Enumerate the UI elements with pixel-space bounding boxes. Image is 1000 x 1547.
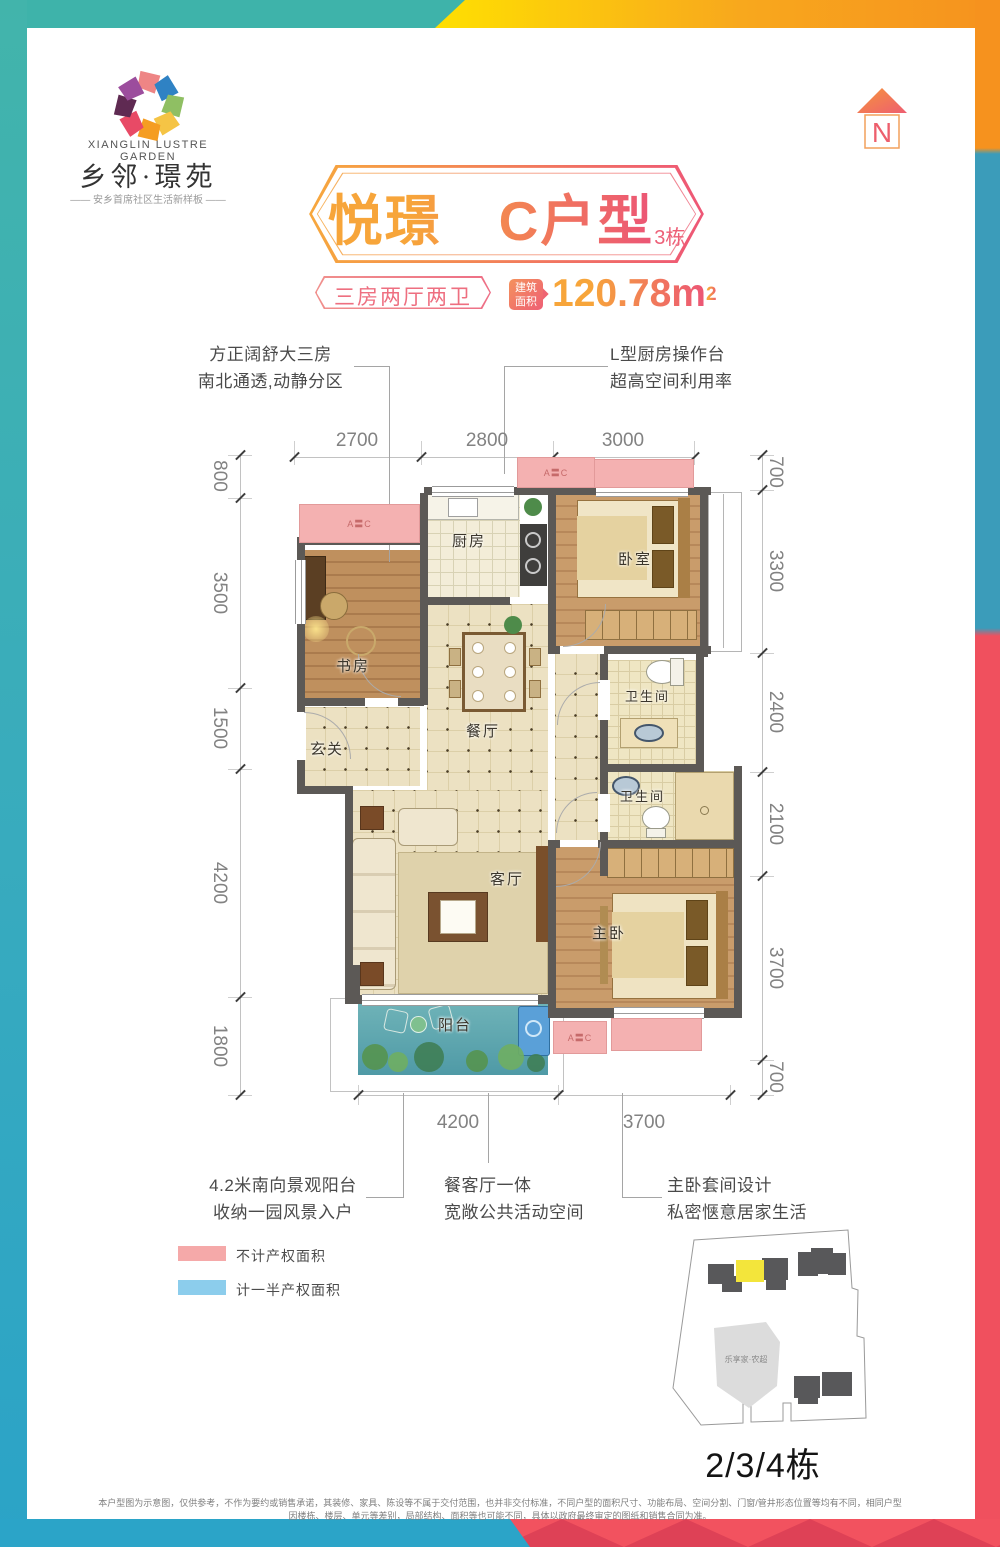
callout-top-left-line2: 南北通透,动静分区 — [198, 372, 343, 391]
leader-line — [504, 366, 608, 367]
callout-top-right: L型厨房操作台 超高空间利用率 — [610, 341, 770, 395]
dining-plate — [504, 666, 516, 678]
room-label-bedroom: 卧室 — [618, 548, 652, 569]
dim-value: 3500 — [210, 563, 230, 623]
ac-label: A〓C — [568, 1031, 593, 1044]
balcony-chair — [383, 1008, 409, 1034]
dim-value: 3300 — [766, 541, 786, 601]
bath2-toilet-bowl — [642, 806, 670, 830]
master-pillow — [686, 900, 708, 940]
leader-line — [622, 1093, 623, 1197]
legend-swatch-pink — [178, 1246, 226, 1261]
ac-area-block: A〓C — [517, 457, 595, 488]
dim-value: 1800 — [210, 1016, 230, 1076]
legend-swatch-blue — [178, 1280, 226, 1295]
bay-window-line — [723, 494, 724, 648]
dim-value: 700 — [766, 442, 786, 502]
lotus-plant — [362, 1044, 388, 1070]
dining-plant — [504, 616, 522, 634]
ac-label: A〓C — [544, 466, 569, 479]
dim-value: 2400 — [766, 682, 786, 742]
lotus-plant — [414, 1042, 444, 1072]
building-number: 3栋 — [654, 227, 685, 249]
lotus-plant — [466, 1050, 488, 1072]
ac-area-block: A〓C — [299, 504, 420, 543]
study-rug — [346, 626, 376, 656]
dining-plate — [472, 642, 484, 654]
site-plan: 乐享家·农超 — [648, 1224, 960, 1450]
dim-value: 3700 — [766, 938, 786, 998]
window — [295, 560, 306, 624]
lotus-plant — [527, 1054, 545, 1072]
callout-top-left-line1: 方正阔舒大三房 — [209, 345, 332, 364]
wall — [734, 766, 742, 1018]
dim-value: 4200 — [210, 853, 230, 913]
callout-top-right-line1: L型厨房操作台 — [610, 345, 725, 364]
legend-label-blue: 计一半产权面积 — [236, 1280, 341, 1300]
door-opening — [560, 646, 604, 654]
area-label-line1: 建筑 — [515, 282, 537, 294]
room-label-foyer: 玄关 — [310, 738, 344, 759]
wall — [297, 786, 353, 794]
pink-area-block — [611, 1018, 702, 1051]
room-label-balcony: 阳台 — [438, 1014, 472, 1035]
dining-plate — [472, 690, 484, 702]
dining-chair — [529, 648, 541, 666]
wall — [696, 653, 704, 771]
callout-bottom-mid: 餐客厅一体 宽敞公共活动空间 — [444, 1172, 614, 1226]
master-wardrobe — [607, 848, 734, 878]
site-market-label: 乐享家·农超 — [725, 1354, 768, 1364]
dim-value: 700 — [766, 1047, 786, 1107]
area-label-line2: 面积 — [515, 296, 537, 308]
leader-line — [504, 366, 505, 474]
callout-bottom-left-line1: 4.2米南向景观阳台 — [209, 1176, 357, 1195]
lotus-plant — [498, 1044, 524, 1070]
wall — [548, 847, 556, 1010]
room-label-bath1: 卫生间 — [625, 686, 670, 705]
callout-top-left: 方正阔舒大三房 南北通透,动静分区 — [188, 341, 353, 395]
callout-bottom-left-line2: 收纳一园风景入户 — [213, 1203, 353, 1222]
tv-console — [536, 846, 548, 942]
dim-guide — [294, 441, 295, 465]
title-text-row: 悦璟 C户型3栋 — [303, 176, 710, 256]
room-label-kitchen: 厨房 — [452, 530, 486, 551]
dim-value: 2800 — [457, 430, 517, 452]
window — [432, 486, 514, 497]
dining-chair — [449, 648, 461, 666]
bedroom-pillow — [652, 506, 674, 544]
poster-page: XIANGLIN LUSTRE GARDEN 乡邻·璟苑 —— 安乡首席社区生活… — [0, 0, 1000, 1547]
north-indicator-icon: N — [855, 86, 910, 152]
leader-line — [366, 1197, 404, 1198]
site-plan-caption: 2/3/4栋 — [688, 1438, 838, 1487]
coffee-table-top — [440, 900, 476, 934]
pink-area-block — [594, 459, 694, 488]
wall — [303, 698, 365, 706]
dim-line-top — [294, 457, 694, 458]
north-letter: N — [872, 117, 892, 148]
living-armchair — [398, 808, 458, 846]
dim-line-right — [762, 455, 763, 1095]
area-value-row: 120.78m2 — [552, 272, 717, 316]
leader-line — [622, 1197, 662, 1198]
dim-value: 1500 — [210, 698, 230, 758]
callout-bottom-left: 4.2米南向景观阳台 收纳一园风景入户 — [198, 1172, 368, 1226]
lotus-plant — [388, 1052, 408, 1072]
dining-plate — [504, 690, 516, 702]
kitchen-plant — [524, 498, 542, 516]
dim-value: 4200 — [428, 1112, 488, 1134]
stove-burner — [525, 558, 541, 574]
master-pillow — [686, 946, 708, 986]
dining-plate — [504, 642, 516, 654]
bath1-toilet-tank — [670, 658, 684, 686]
callout-top-right-line2: 超高空间利用率 — [610, 372, 733, 391]
dining-chair — [529, 680, 541, 698]
room-label-master: 主卧 — [592, 922, 626, 943]
area-superscript: 2 — [706, 284, 717, 305]
legend-label-pink: 不计产权面积 — [236, 1246, 326, 1266]
dim-guide — [694, 441, 695, 465]
wall — [598, 840, 742, 848]
room-label-bath2: 卫生间 — [620, 786, 665, 805]
leader-line — [354, 366, 390, 367]
master-bench — [600, 906, 608, 984]
wall — [700, 487, 708, 657]
stove-burner — [525, 532, 541, 548]
door-opening — [598, 794, 610, 832]
wall — [345, 965, 360, 997]
brand-name-cn: 乡邻·璟苑 — [58, 155, 238, 194]
balcony-slider-window — [362, 994, 538, 1006]
leader-line — [403, 1093, 404, 1197]
dim-value: 3000 — [593, 430, 653, 452]
bedroom-headboard — [678, 498, 690, 598]
brand-logo-pinwheel-icon — [111, 68, 187, 144]
dim-guide — [421, 441, 422, 465]
washing-machine-door — [525, 1020, 542, 1037]
study-lamp-glow — [303, 616, 329, 642]
callout-bottom-right-line2: 私密惬意居家生活 — [667, 1203, 807, 1222]
shower-drain — [700, 806, 709, 815]
bath2-toilet-tank — [646, 828, 666, 838]
dim-value: 800 — [210, 446, 230, 506]
ac-label: A〓C — [347, 517, 372, 530]
study-chair — [320, 592, 348, 620]
room-label-study: 书房 — [336, 655, 370, 676]
room-label-dining: 餐厅 — [466, 720, 500, 741]
callout-bottom-mid-line1: 餐客厅一体 — [444, 1176, 532, 1195]
wall — [600, 764, 704, 772]
dining-chair — [449, 680, 461, 698]
room-label-living: 客厅 — [490, 868, 524, 889]
dim-value: 3700 — [614, 1112, 674, 1134]
callout-bottom-mid-line2: 宽敞公共活动空间 — [444, 1203, 584, 1222]
page-title: 悦璟 C户型 — [328, 190, 655, 252]
wall — [424, 597, 510, 605]
callout-bottom-right: 主卧套间设计 私密惬意居家生活 — [667, 1172, 827, 1226]
wall — [398, 698, 424, 706]
area-value: 120.78m — [552, 272, 706, 315]
dim-value: 2700 — [327, 430, 387, 452]
dining-plate — [472, 666, 484, 678]
dim-line-bottom — [358, 1095, 730, 1096]
living-side-table — [360, 962, 384, 986]
layout-badge: 三房两厅两卫 — [315, 281, 491, 311]
brand-tagline: —— 安乡首席社区生活新样板 —— — [58, 191, 238, 206]
wall — [548, 487, 556, 653]
living-side-table — [360, 806, 384, 830]
disclaimer-text: 本户型图为示意图，仅供参考，不作为要约或销售承诺，其装修、家具、陈设等不属于交付… — [95, 1496, 905, 1522]
area-label-badge: 建筑 面积 — [509, 279, 543, 310]
ac-area-block: A〓C — [553, 1021, 607, 1054]
balcony-table — [410, 1016, 427, 1033]
leader-line — [488, 1093, 489, 1163]
callout-bottom-right-line1: 主卧套间设计 — [667, 1176, 772, 1195]
site-highlighted-building — [736, 1260, 764, 1282]
frame-left-band — [0, 0, 27, 1547]
bath1-sink — [634, 724, 664, 742]
dim-line-left — [240, 455, 241, 1095]
kitchen-sink — [448, 498, 478, 517]
bedroom-pillow — [652, 550, 674, 588]
master-headboard — [716, 891, 728, 999]
bay-window — [708, 492, 742, 652]
frame-right-band — [975, 0, 1000, 1547]
dim-value: 2100 — [766, 794, 786, 854]
